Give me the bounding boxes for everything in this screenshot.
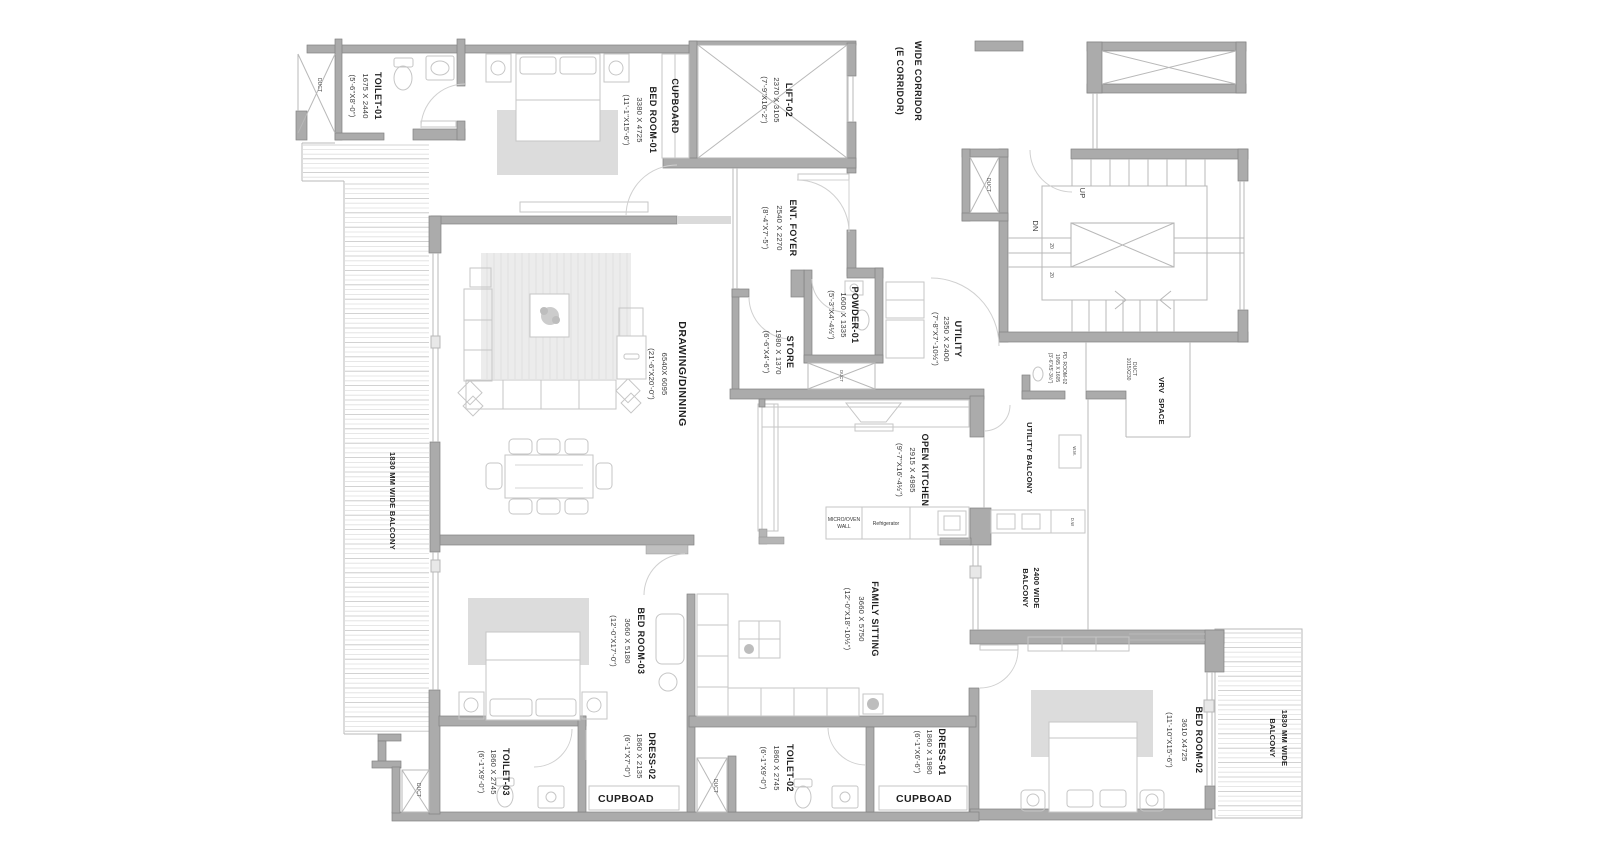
svg-text:(12'-0"X17'-0"): (12'-0"X17'-0") xyxy=(609,615,618,667)
svg-text:2540 X 2270: 2540 X 2270 xyxy=(775,205,784,250)
svg-text:D.W: D.W xyxy=(1070,518,1075,526)
svg-text:(8'-4"X7'-5"): (8'-4"X7'-5") xyxy=(761,207,770,250)
svg-text:WIDE CORRIDOR: WIDE CORRIDOR xyxy=(913,41,923,121)
svg-text:UP: UP xyxy=(1078,188,1087,199)
svg-text:1980 X 1370: 1980 X 1370 xyxy=(774,329,783,374)
svg-text:(9'-7"X16'-4½"): (9'-7"X16'-4½") xyxy=(895,443,904,497)
svg-text:(6'-1"X7'-0"): (6'-1"X7'-0") xyxy=(623,735,632,778)
svg-text:TOILET-02: TOILET-02 xyxy=(785,744,795,792)
svg-text:(21'-6"X20'-0"): (21'-6"X20'-0") xyxy=(647,348,656,400)
svg-text:FAMILY SITTING: FAMILY SITTING xyxy=(870,581,880,657)
svg-text:6540X 6095: 6540X 6095 xyxy=(660,353,669,396)
svg-text:OPEN KITCHEN: OPEN KITCHEN xyxy=(920,434,930,507)
svg-text:DRESS-01: DRESS-01 xyxy=(937,728,947,775)
svg-text:BED ROOM-03: BED ROOM-03 xyxy=(636,608,646,675)
svg-text:(11'-10"X15'-6"): (11'-10"X15'-6") xyxy=(1165,712,1174,768)
svg-text:DRAWING/DINNING: DRAWING/DINNING xyxy=(676,321,688,427)
svg-text:TOILET-03: TOILET-03 xyxy=(501,748,511,796)
svg-text:ENT. FOYER: ENT. FOYER xyxy=(788,199,798,256)
svg-text:DUCT: DUCT xyxy=(415,783,421,797)
svg-text:Refrigerator: Refrigerator xyxy=(873,521,900,527)
svg-text:1860 X 2135: 1860 X 2135 xyxy=(635,733,644,778)
svg-text:1860 X 1980: 1860 X 1980 xyxy=(925,729,934,774)
svg-text:VRV SPACE: VRV SPACE xyxy=(1157,377,1166,425)
svg-text:(7'-8"X7'-10½"): (7'-8"X7'-10½") xyxy=(931,312,940,366)
svg-text:TOILET-01: TOILET-01 xyxy=(373,72,383,120)
svg-text:2400 WIDE: 2400 WIDE xyxy=(1032,567,1041,608)
svg-text:DN: DN xyxy=(1031,220,1040,231)
svg-text:(5'-6"X8'-0"): (5'-6"X8'-0") xyxy=(348,75,357,118)
svg-text:DUCT: DUCT xyxy=(712,779,718,793)
svg-text:(11'-1"X15'-6"): (11'-1"X15'-6") xyxy=(622,94,631,146)
svg-text:1860 X 2745: 1860 X 2745 xyxy=(772,745,781,790)
svg-text:(12'-0"X18'-10½"): (12'-0"X18'-10½") xyxy=(843,588,852,651)
svg-text:1015X230: 1015X230 xyxy=(1125,358,1131,381)
svg-text:LIFT-02: LIFT-02 xyxy=(784,83,794,117)
svg-text:1065 X 1605: 1065 X 1605 xyxy=(1054,354,1060,383)
svg-text:2370 X 3105: 2370 X 3105 xyxy=(772,77,781,122)
svg-text:(5'-3"X4'-4½"): (5'-3"X4'-4½") xyxy=(827,290,836,340)
svg-text:3660 X 5180: 3660 X 5180 xyxy=(623,618,632,663)
svg-text:PD. ROOM-02: PD. ROOM-02 xyxy=(1061,352,1067,385)
svg-text:3660 X 5750: 3660 X 5750 xyxy=(857,596,866,641)
svg-text:20: 20 xyxy=(1048,243,1054,249)
svg-text:(E CORRIDOR): (E CORRIDOR) xyxy=(895,47,905,115)
svg-text:1675 X 2440: 1675 X 2440 xyxy=(361,73,370,118)
svg-text:1830 MM WIDE BALCONY: 1830 MM WIDE BALCONY xyxy=(388,452,397,550)
svg-text:MICRO/OVEN: MICRO/OVEN xyxy=(828,517,861,523)
svg-text:POWDER-01: POWDER-01 xyxy=(850,286,860,343)
svg-text:(6'-1"X6'-6"): (6'-1"X6'-6") xyxy=(913,731,922,774)
svg-text:CUPBOAD: CUPBOAD xyxy=(598,793,654,805)
svg-text:BED ROOM-02: BED ROOM-02 xyxy=(1194,707,1204,774)
svg-text:1600 X 1335: 1600 X 1335 xyxy=(839,292,848,337)
svg-text:STORE: STORE xyxy=(785,336,795,369)
svg-text:1830 MM WIDE: 1830 MM WIDE xyxy=(1280,710,1289,767)
svg-text:UTILITY: UTILITY xyxy=(953,321,963,358)
svg-text:WALL: WALL xyxy=(837,524,851,530)
svg-text:(6'-1"X9'-0"): (6'-1"X9'-0") xyxy=(759,747,768,790)
svg-text:BED ROOM-01: BED ROOM-01 xyxy=(648,87,658,154)
svg-text:2915 X 4985: 2915 X 4985 xyxy=(908,447,917,492)
svg-text:2350 X 2400: 2350 X 2400 xyxy=(942,316,951,361)
svg-text:DUCT: DUCT xyxy=(839,370,844,382)
svg-text:DUCT: DUCT xyxy=(316,78,322,92)
svg-text:(6'-1"X9'-0"): (6'-1"X9'-0") xyxy=(477,751,486,794)
svg-text:UTILITY BALCONY: UTILITY BALCONY xyxy=(1025,422,1034,494)
svg-text:CUPBOAD: CUPBOAD xyxy=(896,793,952,805)
svg-text:3610 X4725: 3610 X4725 xyxy=(1180,719,1189,762)
svg-text:1860 X 2745: 1860 X 2745 xyxy=(489,749,498,794)
svg-text:BALCONY: BALCONY xyxy=(1021,568,1030,607)
svg-text:(3'-6"X5'-3½"): (3'-6"X5'-3½") xyxy=(1047,353,1054,384)
svg-text:DRESS-02: DRESS-02 xyxy=(647,732,657,779)
svg-text:20: 20 xyxy=(1048,272,1054,278)
svg-text:BALCONY: BALCONY xyxy=(1268,718,1277,757)
svg-text:(6'-6"X4'-6"): (6'-6"X4'-6") xyxy=(762,331,771,374)
svg-text:(7'-9"X10'-2"): (7'-9"X10'-2") xyxy=(760,76,769,124)
svg-text:CUPBOARD: CUPBOARD xyxy=(670,78,680,133)
svg-text:W.M.: W.M. xyxy=(1072,446,1077,456)
svg-text:DUCT: DUCT xyxy=(985,178,991,192)
svg-text:3380 X 4725: 3380 X 4725 xyxy=(635,97,644,142)
